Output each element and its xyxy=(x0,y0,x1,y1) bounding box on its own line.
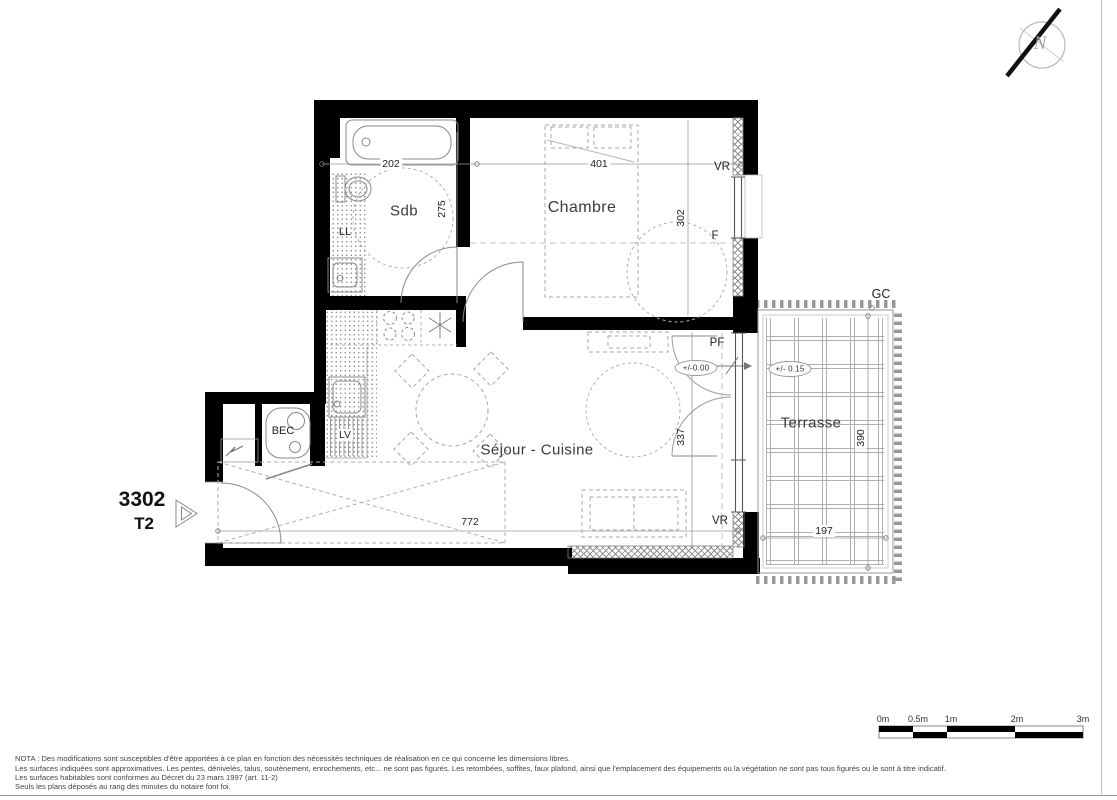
unit-number: 3302 xyxy=(119,488,166,512)
bathroom-door xyxy=(401,247,457,303)
level-terrace: +/- 0.15 xyxy=(776,365,805,374)
north-letter: N xyxy=(1034,33,1047,55)
french-door-frame xyxy=(731,333,746,460)
footer-note-2: Les surfaces indiquées sont approximativ… xyxy=(15,764,946,773)
entry-threshold xyxy=(205,482,223,543)
dim-terrace-depth: 390 xyxy=(855,427,867,449)
label-bedroom-window: F xyxy=(711,230,718,242)
walls xyxy=(205,100,760,574)
label-living-shutter: VR xyxy=(712,515,728,527)
level-interior: +/-0.00 xyxy=(683,364,710,373)
room-label-water-heater-closet: BEC xyxy=(272,425,295,437)
label-french-door: PF xyxy=(710,337,725,349)
water-heater-closet-door xyxy=(266,464,312,479)
cooktop xyxy=(384,312,415,341)
bedroom-window-frame xyxy=(731,177,745,238)
footer-note-1: NOTA : Des modifications sont susceptibl… xyxy=(15,754,570,763)
label-washing-machine: LL xyxy=(339,226,351,238)
scale-label-05: 0.5m xyxy=(908,714,928,724)
bathtub xyxy=(346,120,458,165)
sheet-border-right xyxy=(1101,0,1102,796)
electrical-panel xyxy=(221,439,258,462)
dim-bathroom-depth: 275 xyxy=(436,200,448,218)
bedroom-door xyxy=(463,262,523,322)
exit-arrow-icon xyxy=(716,357,752,374)
furniture xyxy=(218,125,731,546)
living-window-frame xyxy=(731,460,746,512)
footer-note-3: Les surfaces habitables sont conformes a… xyxy=(15,773,278,782)
label-bedroom-shutter: VR xyxy=(714,161,730,173)
dim-bedroom-depth: 302 xyxy=(675,209,687,227)
bedroom-window-bay xyxy=(745,175,762,238)
dim-living-width: 772 xyxy=(459,516,481,528)
tv-stand xyxy=(588,332,668,352)
sheet-border-bottom xyxy=(0,795,1117,796)
scale-label-0: 0m xyxy=(877,714,890,724)
unit-type: T2 xyxy=(134,514,154,534)
toilet xyxy=(336,176,371,202)
windows xyxy=(731,175,762,512)
floor-plan-drawing xyxy=(0,0,1117,800)
footer-note-4: Seuls les plans déposés au rang des minu… xyxy=(15,782,231,791)
scale-label-2: 2m xyxy=(1011,714,1024,724)
room-label-bathroom: Sdb xyxy=(390,203,418,220)
dim-bedroom-width: 401 xyxy=(588,158,610,170)
scale-bar xyxy=(879,726,1083,738)
unit-arrow-icon xyxy=(176,500,197,527)
dim-terrace-width: 197 xyxy=(813,525,835,537)
washbasin xyxy=(328,258,362,292)
extractor-hood-icon xyxy=(429,312,451,338)
dim-french-door-wall: 337 xyxy=(675,428,687,446)
scale-label-3: 3m xyxy=(1077,714,1090,724)
floor-plan-sheet: Sdb Chambre Séjour - Cuisine Terrasse BE… xyxy=(0,0,1117,800)
label-dishwasher: LV xyxy=(337,429,353,441)
scale-label-1: 1m xyxy=(945,714,958,724)
room-label-terrace: Terrasse xyxy=(781,415,842,432)
lightning-bolt-icon xyxy=(226,446,243,456)
label-terrace-railing: GC xyxy=(872,287,891,301)
sofa xyxy=(582,490,686,537)
dim-bathroom-width: 202 xyxy=(380,158,402,170)
entry-door xyxy=(218,483,281,543)
room-label-bedroom: Chambre xyxy=(548,199,617,217)
room-label-living-kitchen: Séjour - Cuisine xyxy=(480,442,593,459)
kitchen-sink xyxy=(329,377,365,417)
